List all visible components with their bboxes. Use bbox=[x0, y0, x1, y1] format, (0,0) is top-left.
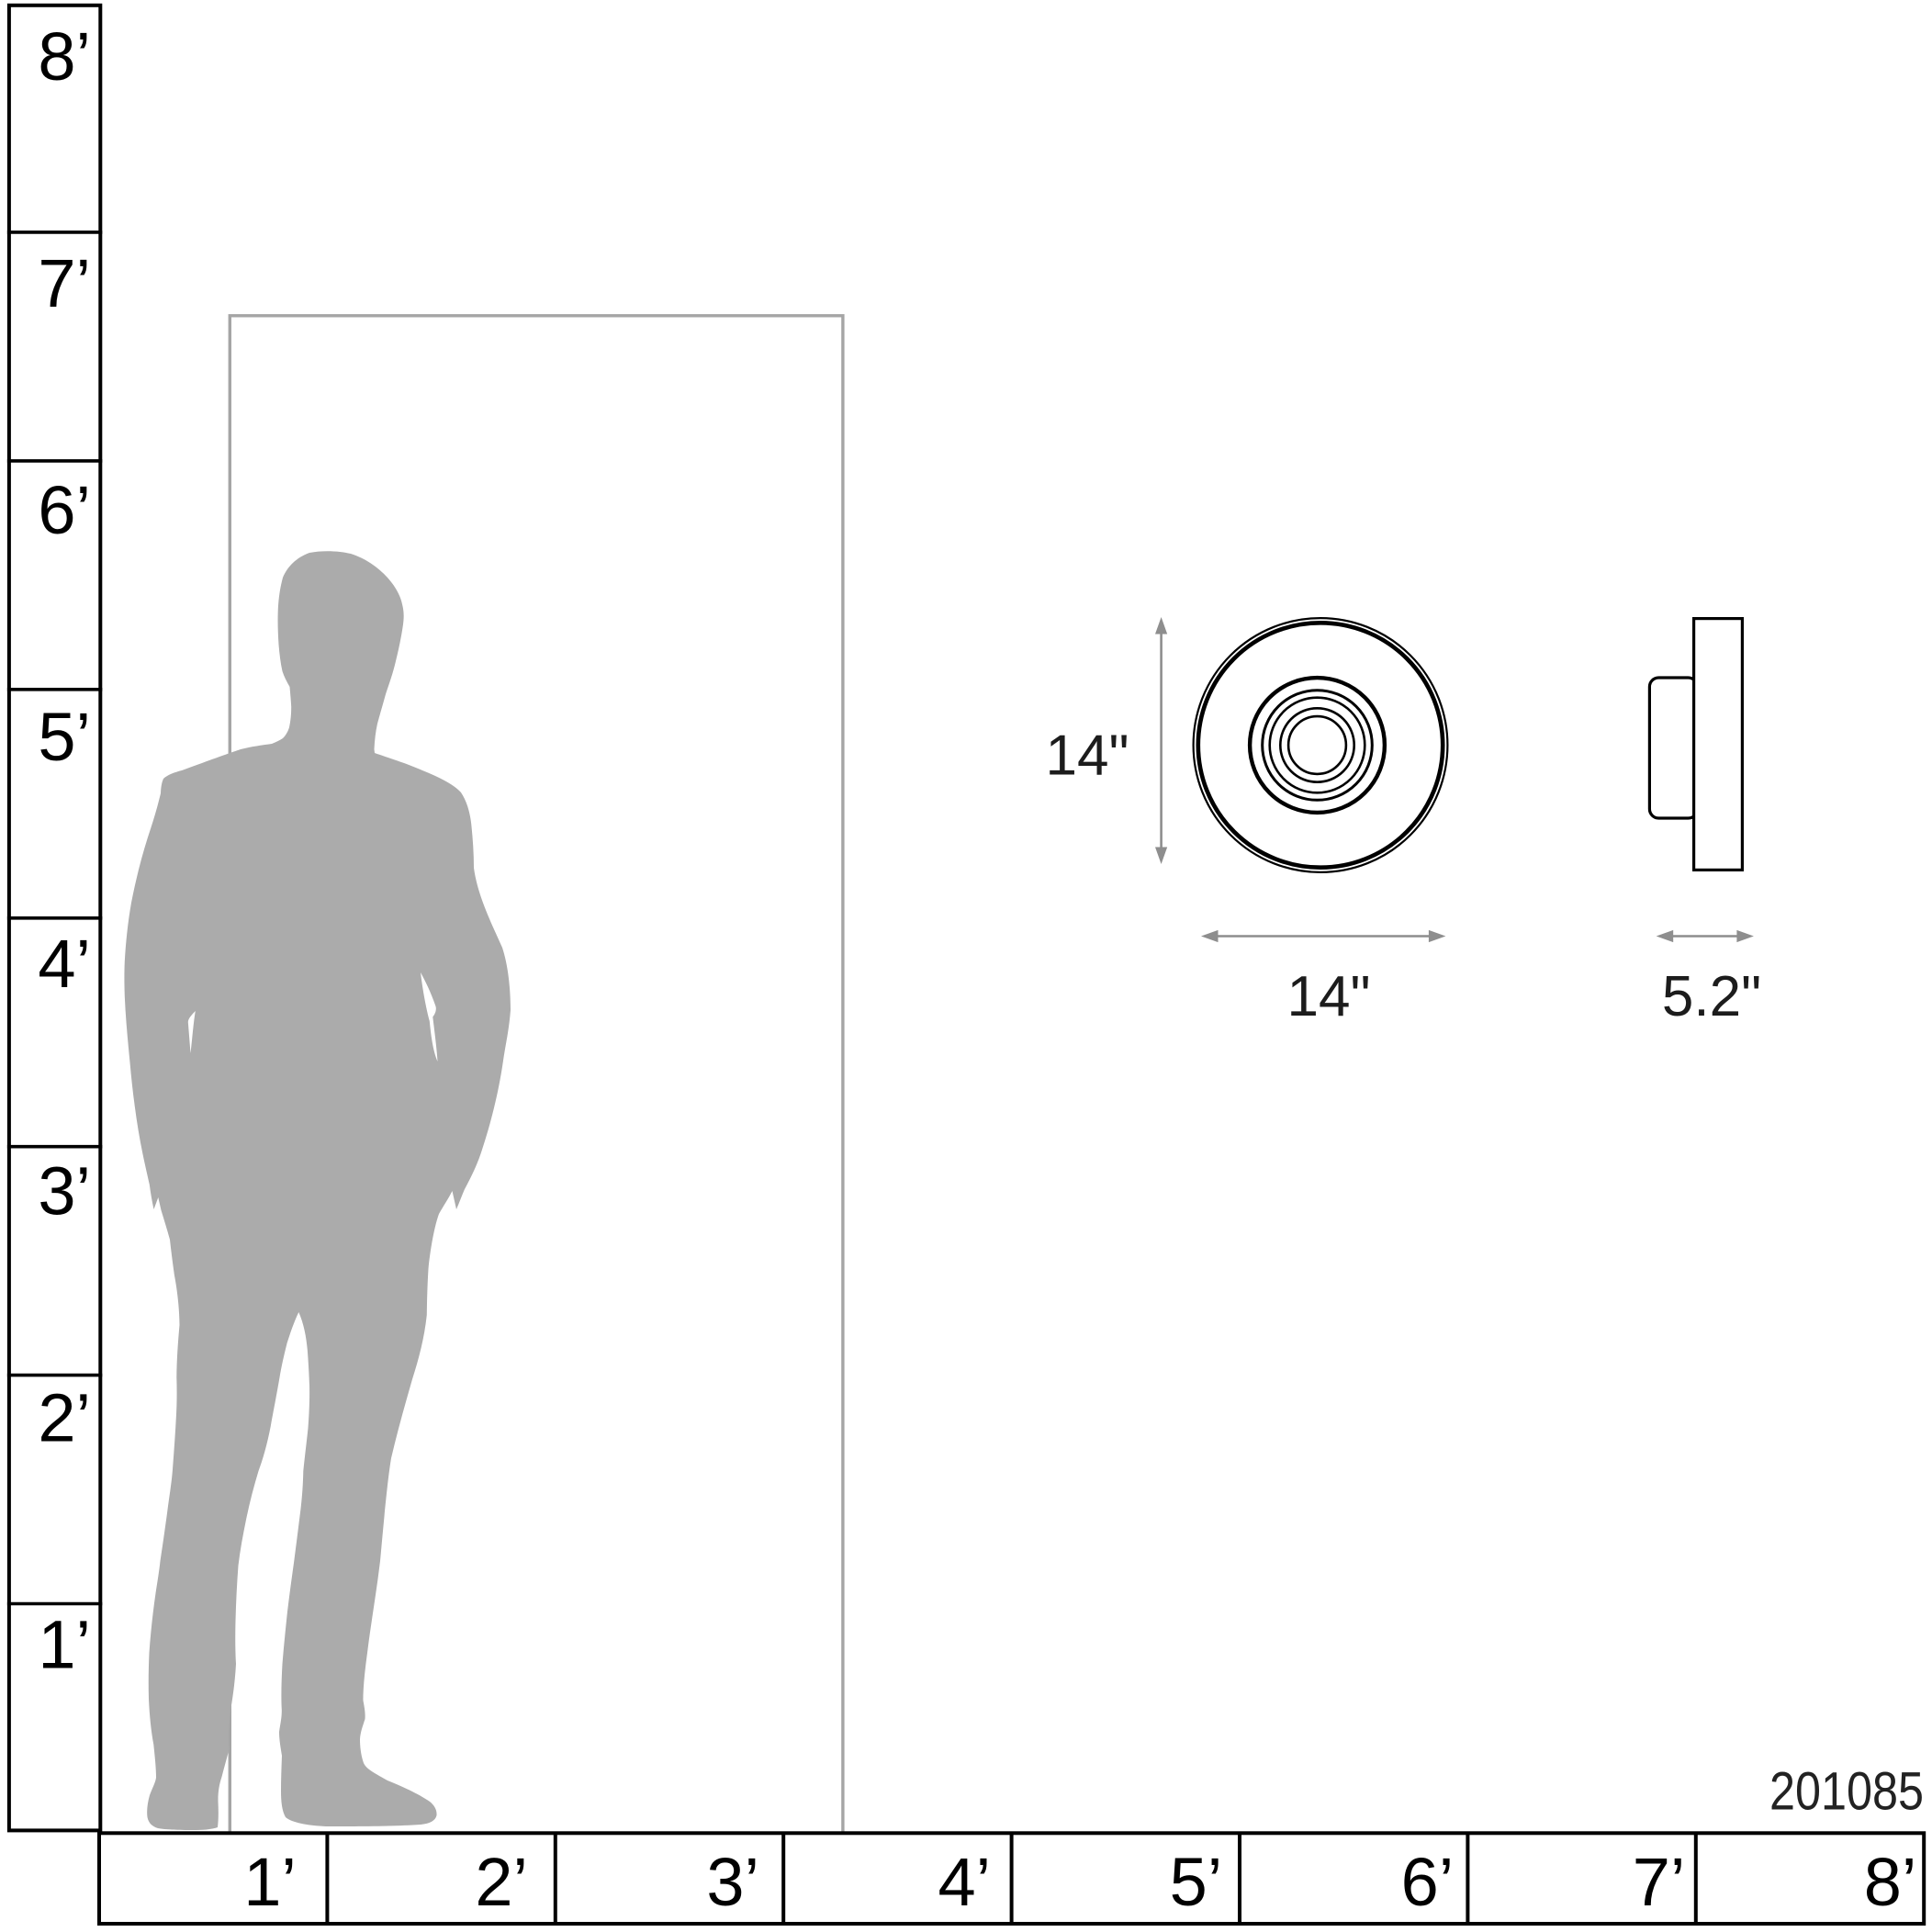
svg-text:3’: 3’ bbox=[38, 1152, 91, 1229]
svg-text:201085: 201085 bbox=[1769, 1762, 1924, 1822]
svg-text:6’: 6’ bbox=[1401, 1844, 1455, 1920]
svg-text:7’: 7’ bbox=[1633, 1844, 1686, 1920]
svg-text:3’: 3’ bbox=[706, 1844, 759, 1920]
svg-text:14": 14" bbox=[1046, 724, 1129, 788]
svg-text:5’: 5’ bbox=[38, 699, 91, 775]
svg-text:5.2": 5.2" bbox=[1662, 965, 1761, 1028]
svg-text:1’: 1’ bbox=[243, 1844, 297, 1920]
svg-text:8’: 8’ bbox=[38, 18, 91, 95]
svg-text:6’: 6’ bbox=[38, 472, 91, 548]
svg-text:4’: 4’ bbox=[38, 926, 91, 1002]
svg-text:2’: 2’ bbox=[475, 1844, 528, 1920]
svg-text:4’: 4’ bbox=[938, 1844, 991, 1920]
svg-text:1’: 1’ bbox=[38, 1607, 91, 1683]
svg-text:8’: 8’ bbox=[1864, 1844, 1917, 1920]
svg-text:14": 14" bbox=[1287, 965, 1371, 1028]
svg-text:2’: 2’ bbox=[38, 1379, 91, 1455]
svg-text:5’: 5’ bbox=[1170, 1844, 1223, 1920]
svg-text:7’: 7’ bbox=[38, 245, 91, 321]
